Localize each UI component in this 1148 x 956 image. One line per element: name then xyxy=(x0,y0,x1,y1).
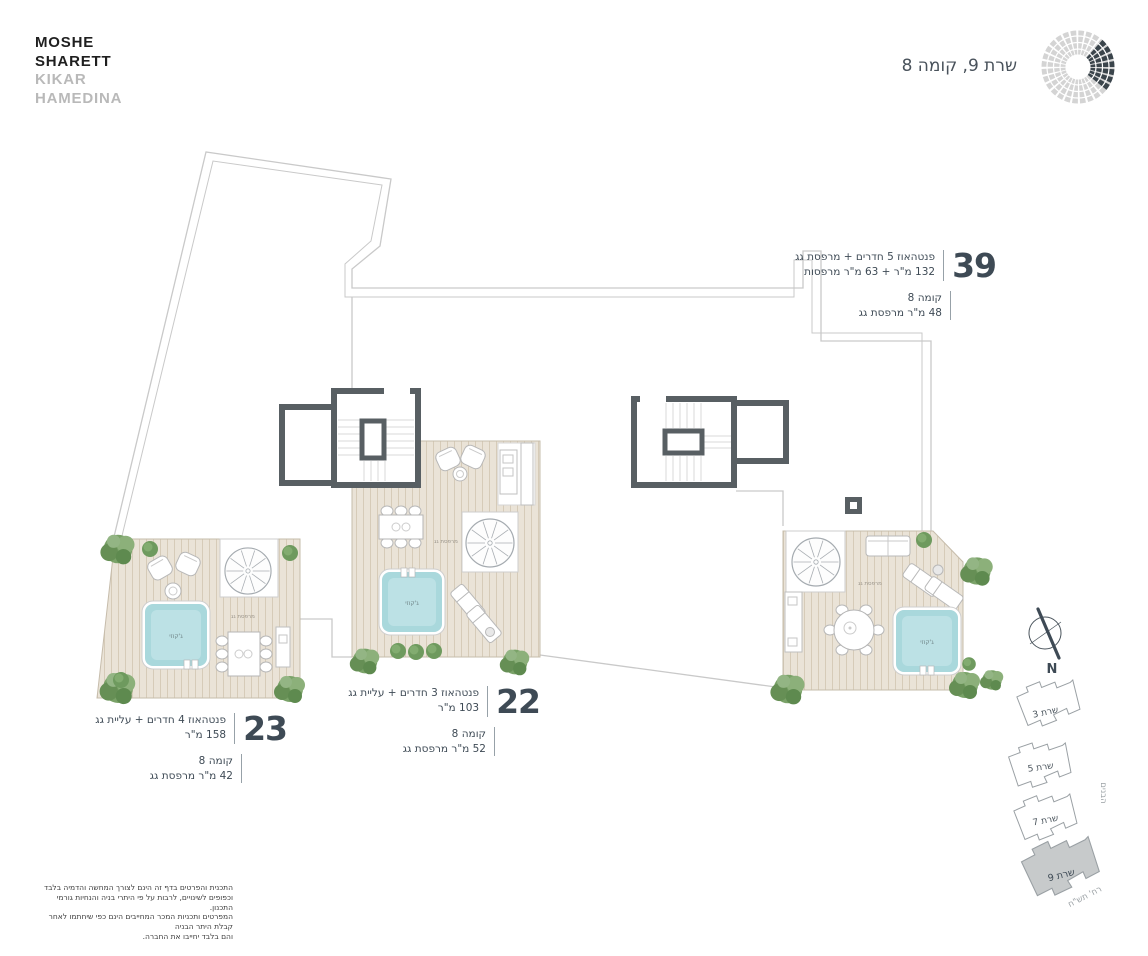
disclaimer-line: המפרטים ותכניות המכר המחייבים הינם כפי ש… xyxy=(35,912,233,932)
brand-line: MOSHE xyxy=(35,34,122,53)
unit-number: 23 xyxy=(243,713,287,744)
page-title: שרת 9, קומה 8 xyxy=(902,56,1017,76)
spiral-staircase xyxy=(225,548,271,594)
brand-wordmark: MOSHE SHARETT KIKAR HAMEDINA xyxy=(35,34,122,108)
spacer xyxy=(503,727,540,756)
floor-plan-canvas: ג'קוזי מרפסת גג xyxy=(0,0,1148,956)
compass: N xyxy=(1029,609,1061,677)
kitchenette xyxy=(276,627,290,667)
spacer xyxy=(959,291,996,320)
site-plan-building-3[interactable] xyxy=(1015,676,1082,730)
divider xyxy=(950,291,951,320)
street-label-side: הבנים xyxy=(1098,782,1108,803)
bush xyxy=(113,672,129,688)
unit-area: 132 מ"ר + 63 מ"ר מרפסות xyxy=(795,265,935,280)
brand-line: SHARETT xyxy=(35,53,122,72)
brand-logo-ring[interactable] xyxy=(1047,36,1109,98)
pool-label: ג'קוזי xyxy=(169,633,183,640)
terrace-label: מרפסת גג xyxy=(858,581,882,587)
tree xyxy=(980,670,1003,690)
pool-label: ג'קוזי xyxy=(920,639,934,646)
terrace-unit-39: ג'קוזי מרפסת גג xyxy=(783,531,964,690)
spiral-staircase xyxy=(792,538,840,586)
brand-line: KIKAR xyxy=(35,71,122,90)
street-label-bottom: רח' תש"ח xyxy=(1067,884,1104,910)
stair-core-left xyxy=(282,385,418,485)
unit-roof-area: 42 מ"ר מרפסת גג xyxy=(150,769,233,784)
unit-area: 158 מ"ר xyxy=(95,728,226,743)
divider xyxy=(241,754,242,783)
disclaimer: התכנית והפרטים בדף זה הינם לצורך המחשה ו… xyxy=(35,883,233,942)
stair-core-right xyxy=(634,393,786,485)
sofa xyxy=(866,536,910,556)
pool: ג'קוזי xyxy=(893,607,961,675)
divider xyxy=(234,713,235,744)
dining-table xyxy=(216,632,272,676)
unit-floor: קומה 8 xyxy=(403,727,486,742)
bush xyxy=(142,541,158,557)
spiral-staircase xyxy=(466,519,514,567)
disclaimer-line: והם בלבד יחייבו את החברה. xyxy=(35,932,233,942)
unit-roof-area: 48 מ"ר מרפסת גג xyxy=(859,306,942,321)
unit-desc: פנטהאוז 3 חדרים + עליית גג xyxy=(348,686,479,701)
bush xyxy=(282,545,298,561)
pool: ג'קוזי xyxy=(379,568,445,635)
bush xyxy=(962,657,976,671)
north-label: N xyxy=(1047,662,1058,677)
site-plan: שרת 3 שרת 5 שרת 7 שרת 9 הבנים רח' תש"ח xyxy=(1007,676,1108,910)
bush xyxy=(408,644,424,660)
pool: ג'קוזי xyxy=(142,601,210,669)
unit-desc: פנטהאוז 4 חדרים + עליית גג xyxy=(95,713,226,728)
terrace-label: מרפסת גג xyxy=(231,614,255,620)
divider xyxy=(494,727,495,756)
kitchenette xyxy=(785,592,802,652)
unit-roof-area: 52 מ"ר מרפסת גג xyxy=(403,742,486,757)
divider xyxy=(943,250,944,281)
bush xyxy=(426,643,442,659)
roof-vent xyxy=(845,497,862,514)
unit-floor: קומה 8 xyxy=(150,754,233,769)
tree xyxy=(960,557,993,585)
unit-39-label: 39 פנטהאוז 5 חדרים + מרפסת גג 132 מ"ר + … xyxy=(795,250,996,320)
divider xyxy=(487,686,488,717)
tree xyxy=(770,675,804,705)
unit-floor: קומה 8 xyxy=(859,291,942,306)
terrace-label: מרפסת גג xyxy=(434,539,458,545)
unit-22-label: 22 פנטהאוז 3 חדרים + עליית גג 103 מ"ר קו… xyxy=(348,686,540,756)
spacer xyxy=(250,754,287,783)
pool-label: ג'קוזי xyxy=(405,600,419,607)
bush xyxy=(390,643,406,659)
compass-needle xyxy=(1038,609,1059,658)
dining-table xyxy=(379,506,423,548)
unit-area: 103 מ"ר xyxy=(348,701,479,716)
unit-23-label: 23 פנטהאוז 4 חדרים + עליית גג 158 מ"ר קו… xyxy=(95,713,287,783)
brand-line: HAMEDINA xyxy=(35,90,122,109)
disclaimer-line: התכנית והפרטים בדף זה הינם לצורך המחשה ו… xyxy=(35,883,233,893)
bush xyxy=(916,532,932,548)
unit-desc: פנטהאוז 5 חדרים + מרפסת גג xyxy=(795,250,935,265)
unit-number: 39 xyxy=(952,250,996,281)
unit-number: 22 xyxy=(496,686,540,717)
disclaimer-line: וכפופים לשינויים, לרבות על פי היתרי בניה… xyxy=(35,893,233,913)
tree xyxy=(100,535,134,565)
